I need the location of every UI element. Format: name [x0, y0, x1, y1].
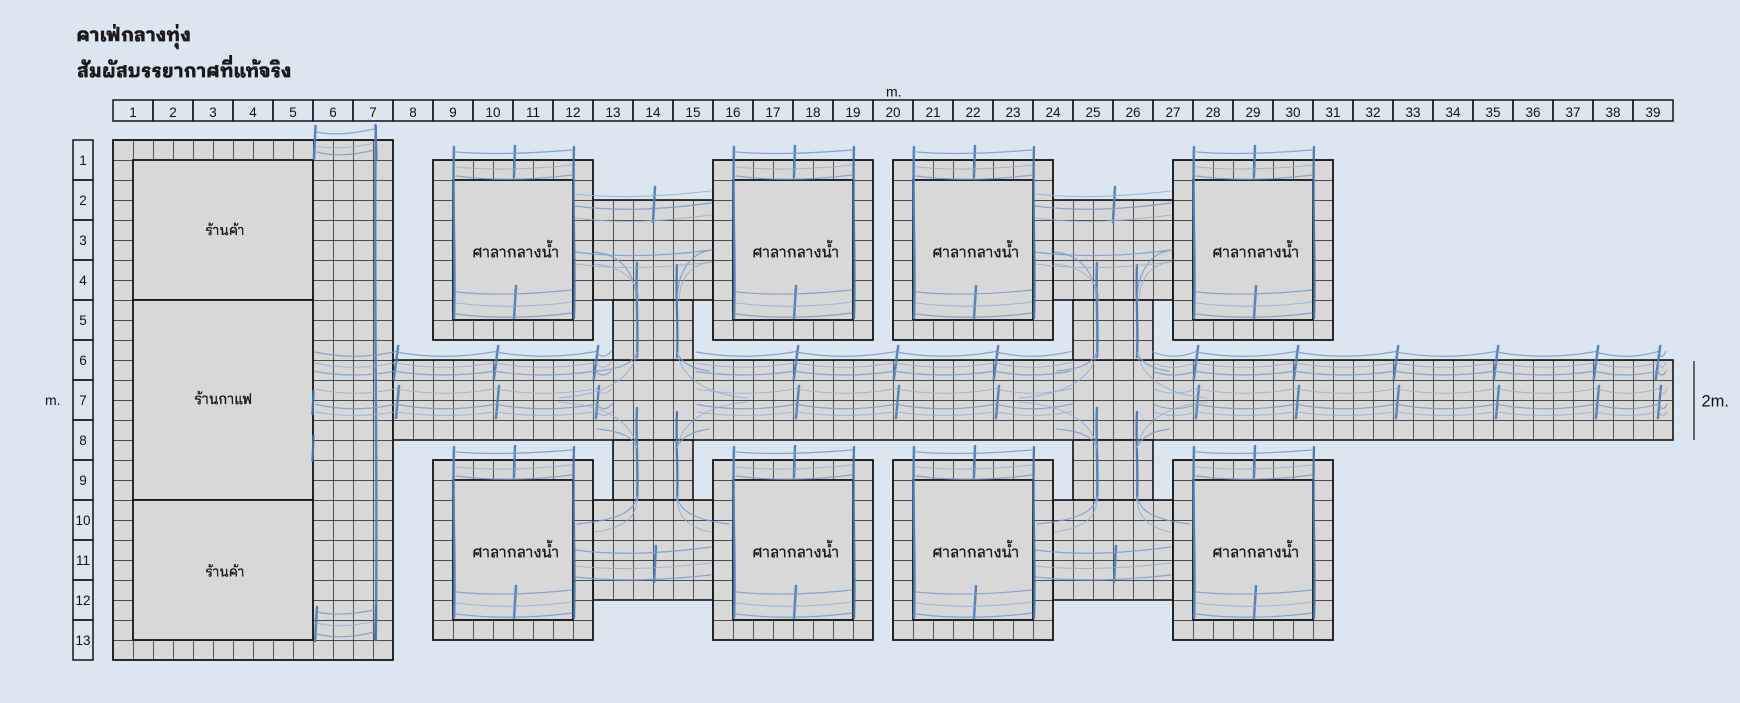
svg-text:1: 1	[129, 105, 137, 120]
svg-text:20: 20	[885, 105, 900, 120]
svg-text:10: 10	[75, 513, 90, 528]
svg-text:m.: m.	[886, 84, 902, 100]
svg-text:3: 3	[209, 105, 217, 120]
svg-text:36: 36	[1525, 105, 1540, 120]
svg-text:32: 32	[1365, 105, 1380, 120]
svg-text:14: 14	[645, 105, 661, 120]
svg-text:1: 1	[79, 153, 87, 168]
svg-text:26: 26	[1125, 105, 1140, 120]
svg-text:2m.: 2m.	[1702, 393, 1730, 411]
svg-text:7: 7	[79, 393, 87, 408]
svg-text:28: 28	[1205, 105, 1220, 120]
svg-text:8: 8	[409, 105, 417, 120]
svg-text:23: 23	[1005, 105, 1020, 120]
svg-text:30: 30	[1285, 105, 1300, 120]
svg-text:13: 13	[605, 105, 620, 120]
svg-text:11: 11	[76, 553, 90, 568]
svg-text:15: 15	[685, 105, 700, 120]
svg-text:11: 11	[526, 105, 540, 120]
svg-text:13: 13	[75, 633, 90, 648]
svg-text:9: 9	[449, 105, 457, 120]
svg-text:12: 12	[565, 105, 580, 120]
svg-text:4: 4	[249, 105, 257, 120]
svg-text:8: 8	[79, 433, 87, 448]
svg-text:29: 29	[1245, 105, 1260, 120]
svg-text:5: 5	[289, 105, 297, 120]
svg-text:38: 38	[1605, 105, 1620, 120]
svg-text:33: 33	[1405, 105, 1420, 120]
svg-text:16: 16	[725, 105, 740, 120]
svg-text:25: 25	[1085, 105, 1100, 120]
svg-text:2: 2	[169, 105, 177, 120]
svg-text:22: 22	[965, 105, 980, 120]
svg-text:12: 12	[75, 593, 90, 608]
svg-text:6: 6	[79, 353, 87, 368]
svg-text:39: 39	[1645, 105, 1660, 120]
svg-text:m.: m.	[45, 392, 61, 408]
svg-text:9: 9	[79, 473, 87, 488]
svg-text:35: 35	[1485, 105, 1500, 120]
svg-text:6: 6	[329, 105, 337, 120]
svg-text:27: 27	[1165, 105, 1180, 120]
svg-text:21: 21	[925, 105, 940, 120]
svg-text:19: 19	[845, 105, 860, 120]
svg-text:2: 2	[79, 193, 87, 208]
svg-text:17: 17	[765, 105, 780, 120]
svg-text:37: 37	[1565, 105, 1580, 120]
svg-text:4: 4	[79, 273, 87, 288]
svg-text:18: 18	[805, 105, 820, 120]
svg-text:7: 7	[369, 105, 377, 120]
svg-text:5: 5	[79, 313, 87, 328]
svg-text:3: 3	[79, 233, 87, 248]
svg-text:31: 31	[1325, 105, 1340, 120]
svg-text:24: 24	[1045, 105, 1061, 120]
svg-text:34: 34	[1445, 105, 1461, 120]
svg-text:10: 10	[485, 105, 500, 120]
